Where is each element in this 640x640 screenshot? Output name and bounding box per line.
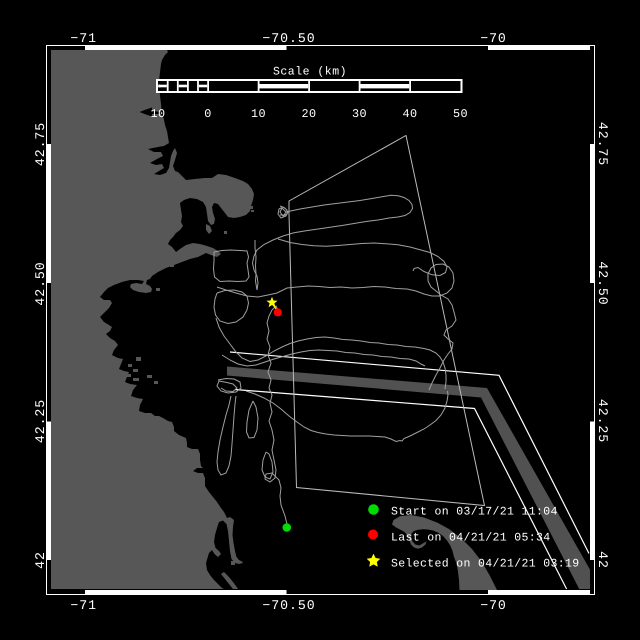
svg-text:Last on 04/21/21 05:34: Last on 04/21/21 05:34 <box>391 532 551 545</box>
svg-text:42.75: 42.75 <box>595 122 610 166</box>
svg-text:Start on 03/17/21 11:04: Start on 03/17/21 11:04 <box>391 506 558 519</box>
svg-text:−70.50: −70.50 <box>262 31 315 46</box>
svg-text:40: 40 <box>403 107 418 121</box>
svg-text:Selected on 04/21/21 03:19: Selected on 04/21/21 03:19 <box>391 558 580 571</box>
svg-text:30: 30 <box>352 107 367 121</box>
svg-text:0: 0 <box>204 107 211 121</box>
svg-text:−71: −71 <box>70 598 97 613</box>
svg-text:42.50: 42.50 <box>595 261 610 305</box>
svg-text:−70: −70 <box>480 598 507 613</box>
svg-text:20: 20 <box>302 107 317 121</box>
svg-text:42: 42 <box>595 551 610 569</box>
svg-text:42.25: 42.25 <box>595 399 610 443</box>
svg-text:42.75: 42.75 <box>33 122 48 166</box>
svg-text:10: 10 <box>251 107 266 121</box>
svg-text:−70: −70 <box>480 31 507 46</box>
svg-text:−71: −71 <box>70 31 97 46</box>
svg-text:−70.50: −70.50 <box>262 598 315 613</box>
svg-text:42.50: 42.50 <box>33 261 48 305</box>
svg-text:10: 10 <box>151 107 166 121</box>
svg-text:42: 42 <box>33 551 48 569</box>
svg-text:42.25: 42.25 <box>33 399 48 443</box>
svg-text:50: 50 <box>453 107 468 121</box>
svg-text:Scale (km): Scale (km) <box>273 66 347 79</box>
